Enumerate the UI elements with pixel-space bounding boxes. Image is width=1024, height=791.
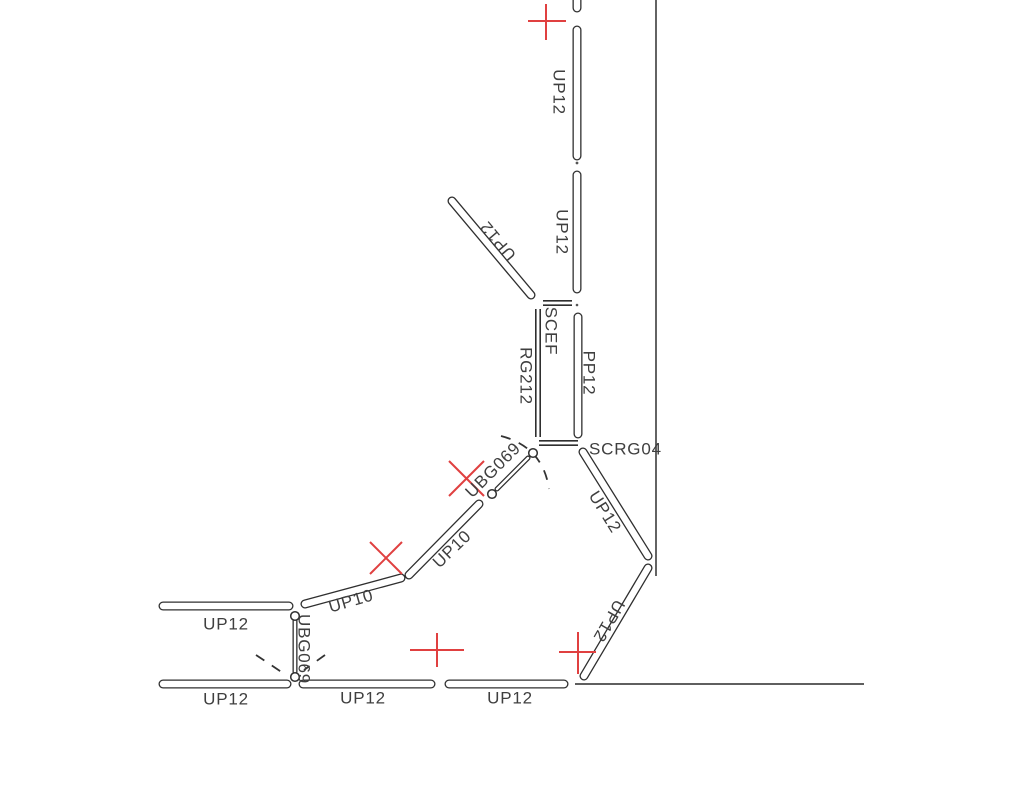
junction-dot-scef xyxy=(576,304,579,307)
segment-label-up12-left-bottom: UP12 xyxy=(203,690,249,709)
cad-drawing-canvas: UP12 UP12 UP12 SCEF RG212 PP12 SCRG04 UB… xyxy=(0,0,1024,791)
duct-end-circle xyxy=(529,449,538,458)
segment-label-pp12: PP12 xyxy=(580,351,599,396)
junction-dot-riser xyxy=(576,162,579,165)
segment-label-up12-bottom-middle: UP12 xyxy=(340,689,386,708)
segment-label-scrg04: SCRG04 xyxy=(589,440,662,459)
segment-label-up12-diagonal-bottom: UP12 xyxy=(589,596,628,645)
segment-label-rg212: RG212 xyxy=(517,347,536,405)
marker-cross-top xyxy=(528,4,566,40)
dashed-tick-left xyxy=(256,655,283,673)
segment-label-ubg069-vertical: UBG069 xyxy=(295,614,314,684)
segment-label-up12-bottom-right: UP12 xyxy=(487,689,533,708)
duct-end-circle xyxy=(488,490,497,499)
segment-label-up12-left-top: UP12 xyxy=(203,615,249,634)
marker-x-up10 xyxy=(370,542,402,574)
marker-cross-bottom-middle xyxy=(410,633,464,667)
segment-label-up12-riser-top: UP12 xyxy=(550,69,569,115)
segment-label-scef: SCEF xyxy=(542,307,561,356)
segment-label-up10-lower: UP10 xyxy=(326,586,375,617)
segment-label-up12-riser-mid: UP12 xyxy=(553,209,572,255)
